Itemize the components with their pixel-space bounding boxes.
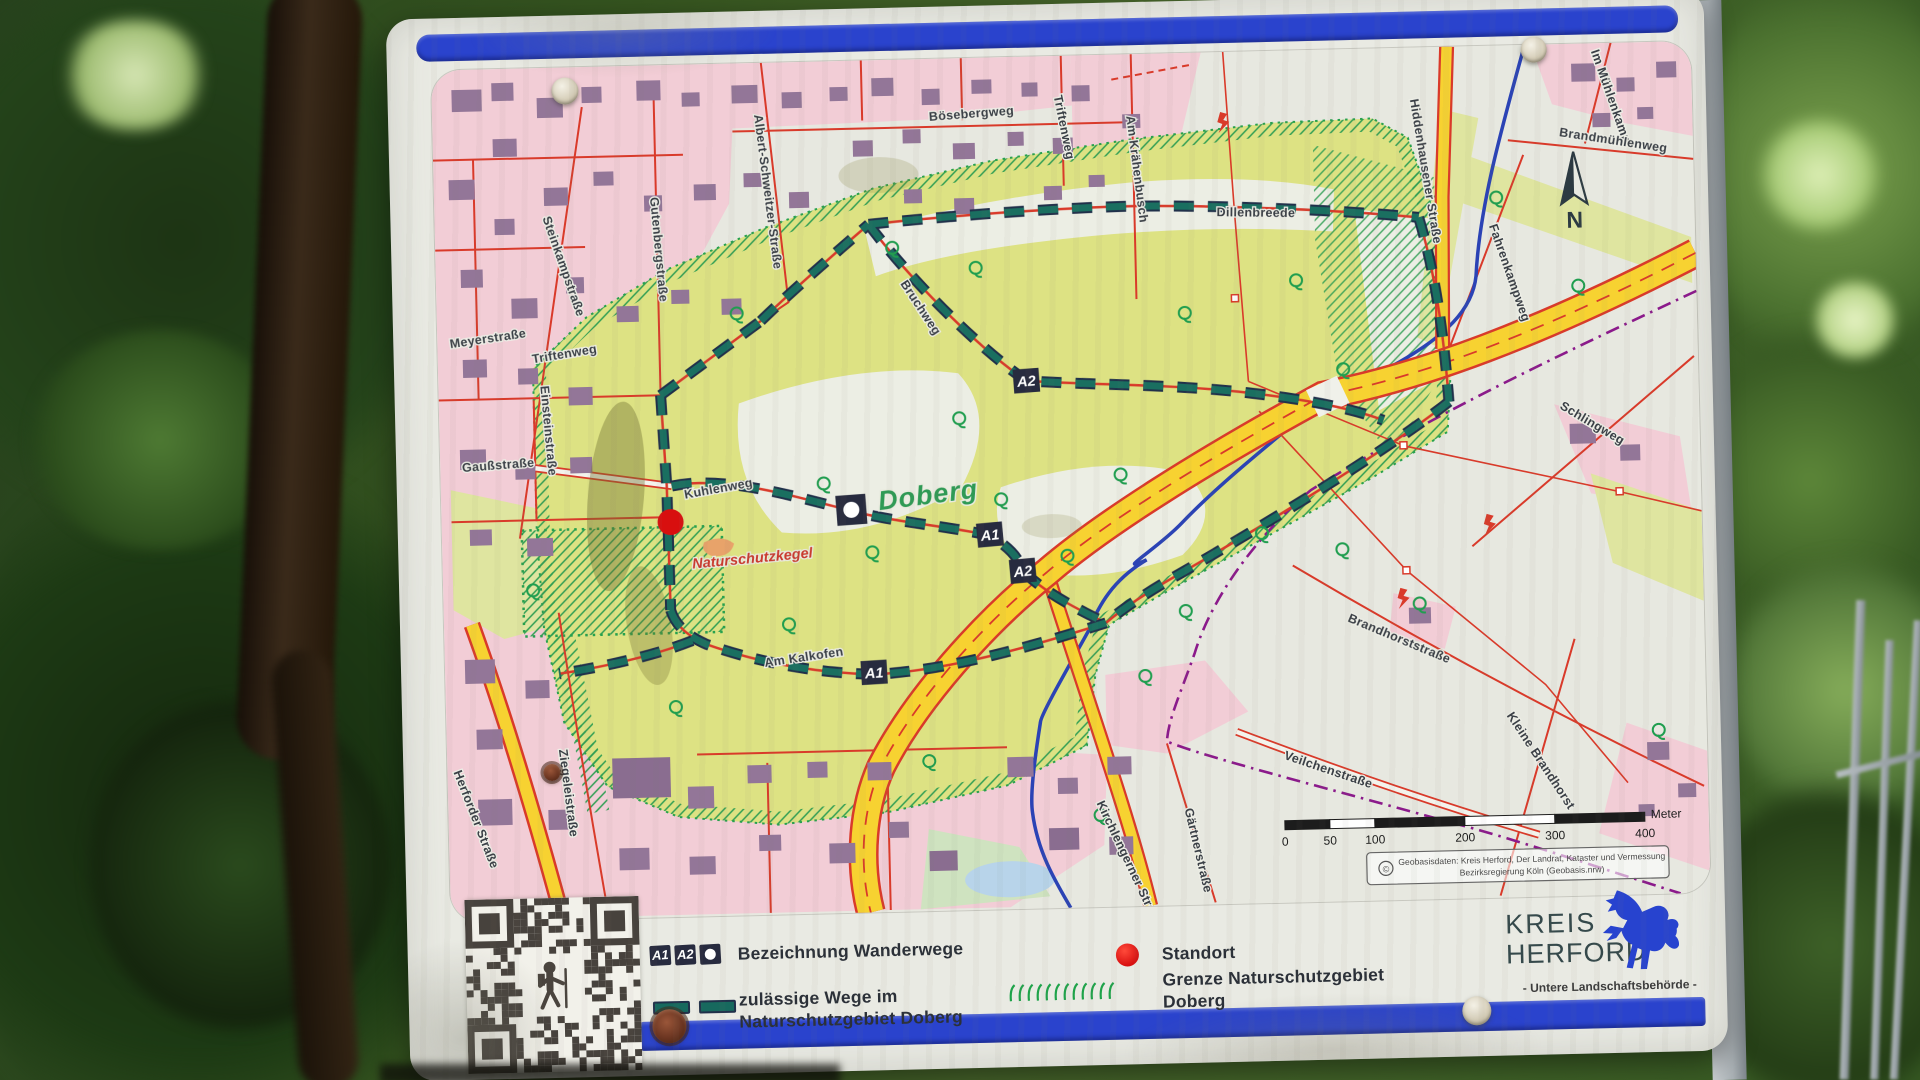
horse-logo-icon (1588, 885, 1682, 975)
foliage-blob (1810, 280, 1900, 360)
legend-marker-hut-icon (699, 944, 721, 965)
foliage-blob (60, 20, 210, 130)
attribution-box: © Geobasisdaten: Kreis Herford, Der Land… (1367, 846, 1670, 885)
photo-of-map-sign: A1 A2 A1 A2 Triftenweg Triftenweg Steink… (0, 0, 1920, 1080)
svg-text:300: 300 (1545, 828, 1566, 842)
legend-route-markers-label: Bezeichnung Wanderwege (738, 938, 964, 964)
svg-text:0: 0 (1282, 835, 1289, 849)
reserve-map: A1 A2 A1 A2 Triftenweg Triftenweg Steink… (431, 41, 1711, 922)
svg-text:A1: A1 (864, 665, 884, 682)
legend-marker-a1: A1 (649, 945, 671, 966)
legend-boundary-line1: Grenze Naturschutzgebiet (1162, 964, 1384, 990)
publisher-subtitle: - Untere Landschaftsbehörde - (1505, 977, 1715, 996)
route-marker-a2: A2 (1012, 368, 1040, 394)
route-marker-hut (835, 494, 867, 526)
svg-text:50: 50 (1323, 833, 1337, 847)
svg-text:©: © (1383, 864, 1390, 874)
svg-text:N: N (1566, 207, 1583, 233)
legend-allowed-paths-line1: zulässige Wege im (739, 986, 898, 1011)
sign-shadow (380, 1064, 840, 1080)
route-marker-a1: A1 (976, 521, 1004, 547)
svg-text:A2: A2 (1012, 563, 1033, 581)
foliage-blob (1760, 120, 1880, 230)
svg-text:A2: A2 (1016, 373, 1037, 390)
route-marker-a2: A2 (1009, 558, 1037, 584)
svg-text:100: 100 (1365, 832, 1386, 846)
legend-standort-label: Standort (1162, 942, 1236, 965)
svg-text:Meter: Meter (1651, 806, 1682, 821)
legend-marker-a2: A2 (674, 944, 696, 965)
route-marker-a1: A1 (861, 660, 888, 685)
information-sign-panel: A1 A2 A1 A2 Triftenweg Triftenweg Steink… (386, 0, 1729, 1080)
qr-code (464, 896, 642, 1074)
svg-text:A1: A1 (979, 527, 1000, 545)
legend-boundary-line2: Doberg (1163, 990, 1226, 1012)
legend-standort-dot-icon (1116, 943, 1140, 967)
legend-route-dash-icon (699, 1000, 736, 1014)
svg-text:200: 200 (1455, 830, 1476, 844)
street-label: Dillenbreede (1216, 205, 1295, 220)
svg-text:400: 400 (1635, 826, 1656, 840)
legend-boundary-icon (1004, 977, 1125, 1006)
